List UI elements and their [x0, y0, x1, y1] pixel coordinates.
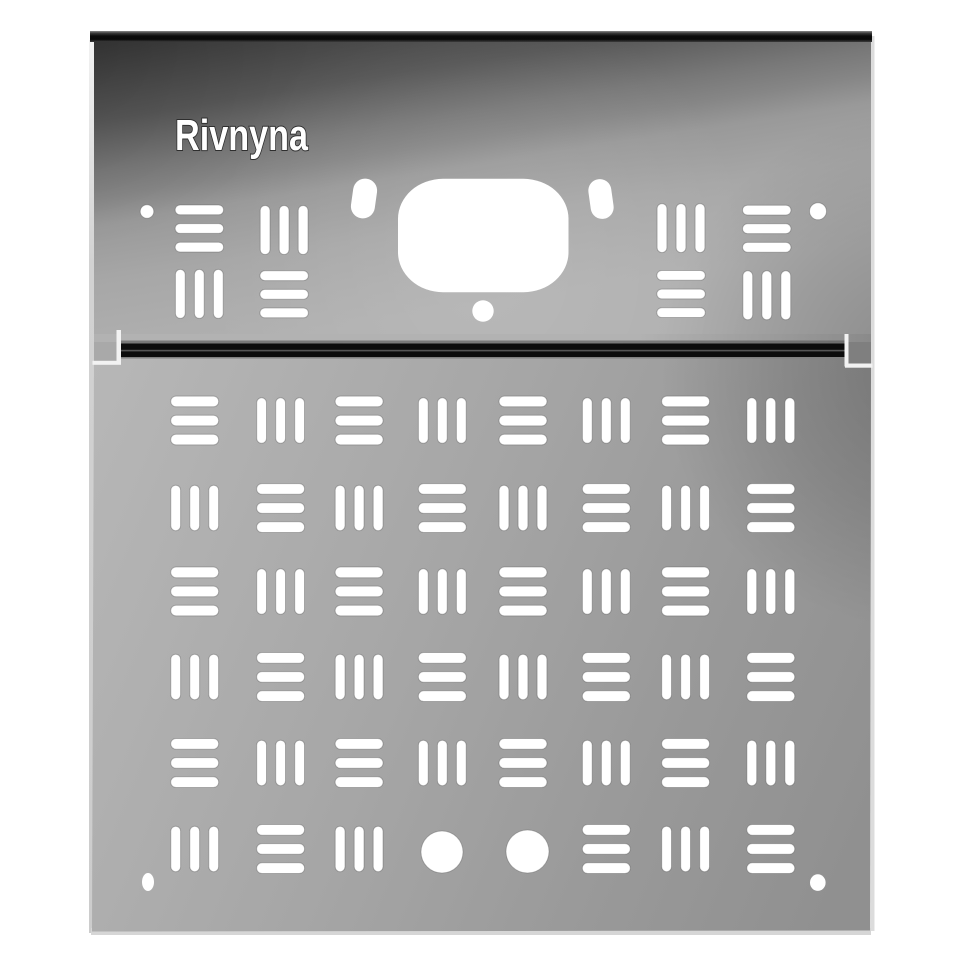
svg-text:Rivnyna: Rivnyna [175, 111, 308, 160]
